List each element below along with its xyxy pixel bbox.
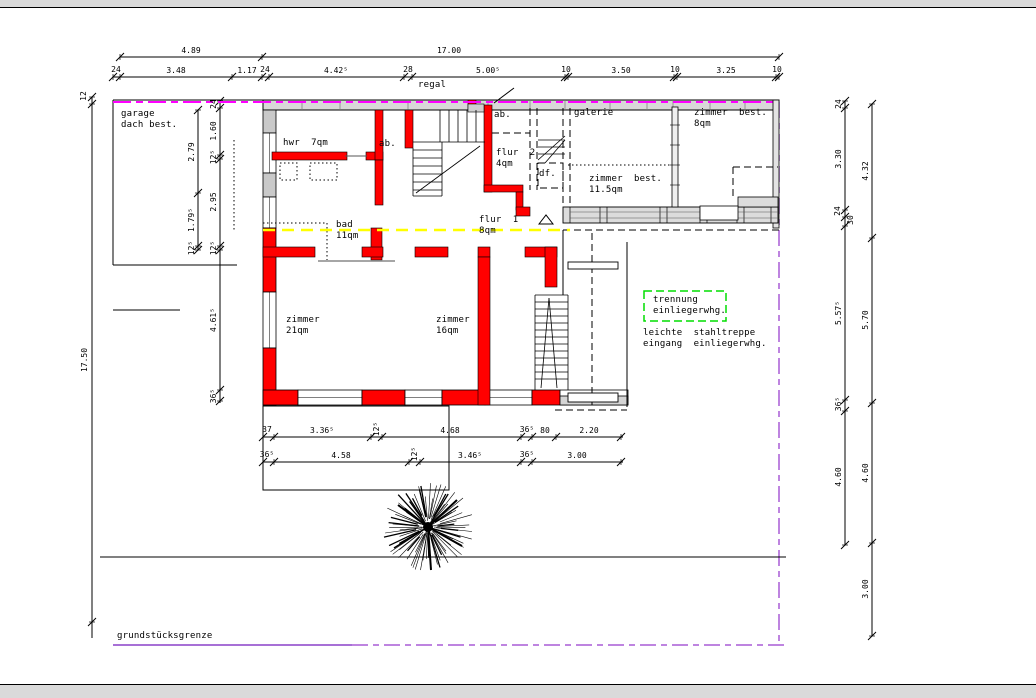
dim-label-top-detail-6: 5.00⁵ bbox=[476, 67, 500, 75]
dim-label-left-b-2: 12⁵ bbox=[210, 150, 218, 164]
dim-label-right-inner-0: 24 bbox=[835, 99, 843, 109]
dim-label-top-detail-3: 24 bbox=[260, 66, 270, 74]
label-ab-left: ab. bbox=[379, 140, 396, 149]
dim-label-bottom1-6: 2.20 bbox=[579, 427, 598, 435]
label-stair-note-line1: leichte stahltreppe bbox=[643, 329, 755, 338]
dim-label-right-inner-6: 4.60 bbox=[835, 467, 843, 486]
dim-label-bottom2-2: 12⁵ bbox=[411, 447, 419, 461]
dim-label-top-detail-10: 3.25 bbox=[716, 67, 735, 75]
label-zimmer21-line2: 21qm bbox=[286, 327, 308, 336]
label-hwr: hwr 7qm bbox=[283, 139, 328, 148]
label-trennung-line1: trennung bbox=[653, 296, 698, 305]
dim-label-top-detail-1: 3.48 bbox=[166, 67, 185, 75]
label-flur2-line1: flur 2 bbox=[496, 149, 535, 158]
label-ab-top: ab. bbox=[494, 111, 511, 120]
dim-label-left-b-5: 4.61⁵ bbox=[210, 308, 218, 332]
property-boundary bbox=[113, 102, 786, 645]
label-stair-note-line2: eingang einliegerwhg. bbox=[643, 340, 767, 349]
dim-label-top-detail-0: 24 bbox=[111, 66, 121, 74]
label-zimmer-best8-line2: 8qm bbox=[694, 120, 711, 129]
label-zimmer-best11-line1: zimmer best. bbox=[589, 175, 662, 184]
dim-label-right-outer-3: 3.00 bbox=[862, 579, 870, 598]
label-regal: regal bbox=[418, 81, 446, 90]
label-zimmer-best11-line2: 11.5qm bbox=[589, 186, 623, 195]
dim-label-left-b-3: 2.95 bbox=[210, 192, 218, 211]
dim-label-top-detail-9: 10 bbox=[670, 66, 680, 74]
dim-label-bottom2-0: 36⁵ bbox=[260, 451, 274, 459]
dim-label-top-detail-11: 10 bbox=[772, 66, 782, 74]
dim-label-bottom2-1: 4.58 bbox=[331, 452, 350, 460]
dim-label-top-detail-4: 4.42⁵ bbox=[324, 67, 348, 75]
dim-label-top-detail-7: 10 bbox=[561, 66, 571, 74]
misc-lines bbox=[318, 156, 627, 407]
dim-label-left-a-1: 1.79⁵ bbox=[188, 208, 196, 232]
dim-label-right-inner-3: 30 bbox=[847, 215, 855, 225]
dim-label-right-outer-0: 4.32 bbox=[862, 161, 870, 180]
label-grundstuecksgrenze: grundstücksgrenze bbox=[117, 632, 213, 641]
label-flur1-line1: flur 1 bbox=[479, 216, 518, 225]
dim-label-top-overall-0: 4.89 bbox=[181, 47, 200, 55]
dim-label-top-detail-2: 1.17 bbox=[237, 67, 256, 75]
dim-label-bottom2-3: 3.46⁵ bbox=[458, 452, 482, 460]
floorplan-page: 4.89 17.00 24 3.48 1.17 24 4.42⁵ 28 5.00… bbox=[0, 0, 1036, 698]
label-flur2-line2: 4qm bbox=[496, 160, 513, 169]
label-bad-line1: bad bbox=[336, 221, 353, 230]
dim-label-left-a-0: 2.79 bbox=[188, 142, 196, 161]
label-garage-line2: dach best. bbox=[121, 121, 177, 130]
dim-left-outer bbox=[88, 93, 96, 638]
floorplan-linework bbox=[0, 0, 1036, 698]
dim-label-left-b-0: 24 bbox=[210, 99, 218, 109]
dim-label-bottom2-4: 36⁵ bbox=[520, 451, 534, 459]
stair-winder-df bbox=[538, 136, 565, 163]
dim-label-left-b-6: 36⁵ bbox=[210, 389, 218, 403]
dim-label-left-b-4: 12⁵ bbox=[210, 241, 218, 255]
vent-triangle-marker bbox=[539, 215, 553, 224]
dim-label-right-inner-4: 5.57⁵ bbox=[835, 301, 843, 325]
stair-main bbox=[413, 104, 485, 196]
label-trennung-line2: einliegerwhg. bbox=[653, 307, 726, 316]
label-bad-line2: 11qm bbox=[336, 232, 358, 241]
dim-label-left-a-2: 12⁵ bbox=[188, 241, 196, 255]
dim-right-outer bbox=[868, 100, 876, 640]
dim-label-bottom1-3: 4.68 bbox=[440, 427, 459, 435]
dim-label-top-detail-5: 28 bbox=[403, 66, 413, 74]
dim-label-bottom1-0: 37 bbox=[262, 426, 272, 434]
dim-top-detail bbox=[109, 73, 783, 81]
south-window-band bbox=[563, 197, 778, 223]
stair-basement bbox=[535, 295, 568, 390]
label-zimmer-best8-line1: zimmer best. bbox=[694, 109, 767, 118]
garage-outline bbox=[113, 100, 263, 310]
label-galerie: galerie bbox=[574, 109, 613, 118]
label-zimmer16-line1: zimmer bbox=[436, 316, 470, 325]
dim-label-top-overall-1: 17.00 bbox=[437, 47, 461, 55]
terrace-outline bbox=[263, 406, 449, 490]
label-garage-line1: garage bbox=[121, 110, 155, 119]
dim-label-bottom1-2: 12⁵ bbox=[373, 422, 381, 436]
dim-label-bottom2-5: 3.00 bbox=[567, 452, 586, 460]
dim-label-left-outer-1: 17.50 bbox=[81, 348, 89, 372]
dim-label-right-outer-2: 4.60 bbox=[862, 463, 870, 482]
dim-label-right-inner-2: 24 bbox=[834, 206, 842, 216]
label-zimmer16-line2: 16qm bbox=[436, 327, 458, 336]
label-df: df. bbox=[539, 170, 556, 179]
existing-wall-galerie bbox=[670, 107, 680, 207]
dim-label-bottom1-4: 36⁵ bbox=[520, 426, 534, 434]
dim-label-left-outer-0: 12 bbox=[80, 91, 88, 101]
label-flur1-line2: 8qm bbox=[479, 227, 496, 236]
dim-label-top-detail-8: 3.50 bbox=[611, 67, 630, 75]
dim-label-left-b-1: 1.60 bbox=[210, 121, 218, 140]
dim-label-bottom1-5: 80 bbox=[540, 427, 550, 435]
label-zimmer21-line1: zimmer bbox=[286, 316, 320, 325]
dim-label-right-inner-5: 36⁵ bbox=[835, 397, 843, 411]
dim-label-right-outer-1: 5.70 bbox=[862, 310, 870, 329]
dim-label-right-inner-1: 3.30 bbox=[835, 149, 843, 168]
dim-label-bottom1-1: 3.36⁵ bbox=[310, 427, 334, 435]
top-wall-band bbox=[263, 88, 779, 110]
